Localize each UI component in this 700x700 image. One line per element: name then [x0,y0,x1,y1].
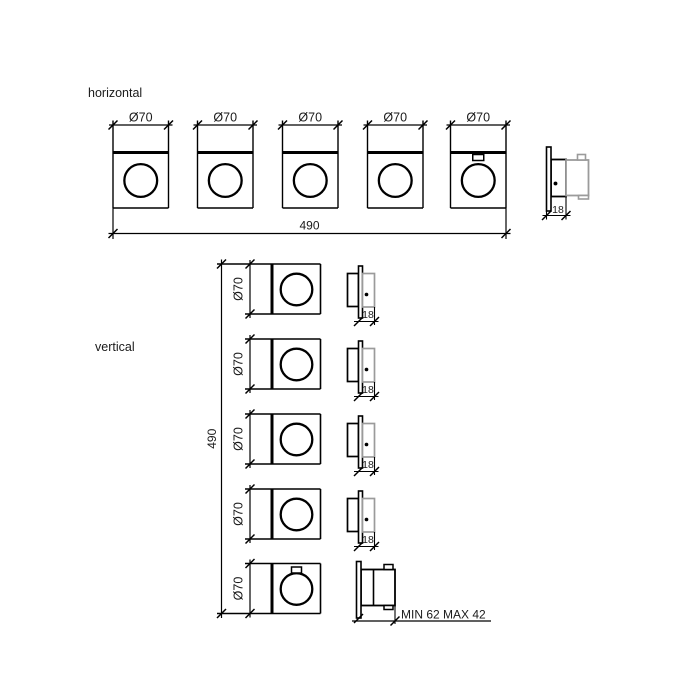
dim-label-diameter: Ø70 [232,277,246,301]
knob-circle [281,499,313,531]
section-label-vertical: vertical [95,340,135,354]
side-view-handle-foot [579,196,589,200]
dim-label-depth: 18 [362,459,374,471]
dim-label-diameter: Ø70 [232,577,246,601]
side-view-handle-tab [578,155,586,161]
side-view-wall-plate [547,147,552,211]
knob-circle [294,164,327,197]
dim-label-diameter: Ø70 [232,352,246,376]
side-view-handle [566,160,589,196]
mounting-dot [365,293,369,297]
mounting-dot [365,368,369,372]
handle-tab [473,155,484,161]
dim-label-depth: 18 [362,309,374,321]
side-view-body [348,274,359,307]
technical-drawing-page: horizontalØ70Ø70Ø70Ø70Ø7049018verticalØ7… [0,0,700,700]
knob-circle [124,164,157,197]
handle-tab [292,567,302,573]
dim-label-diameter: Ø70 [232,502,246,526]
dim-label-depth: 18 [552,204,564,216]
dim-label-overall-width: 490 [299,219,319,233]
side-view-handle [363,424,375,458]
side-view-body [348,424,359,457]
side-view-body [348,499,359,532]
dim-label-diameter: Ø70 [232,427,246,451]
dim-label-diameter: Ø70 [383,111,407,125]
side-view-body [361,570,395,606]
side-view-handle-foot [384,606,393,610]
mounting-dot [365,518,369,522]
dim-label-depth: 18 [362,534,374,546]
dim-label-overall-height: 490 [205,428,219,448]
dim-label-depth: 18 [362,384,374,396]
side-view-wall-plate [357,562,362,619]
side-view-body [551,160,566,197]
side-view-body [348,349,359,382]
knob-circle [281,349,313,381]
knob-circle [281,573,313,605]
dim-label-diameter: Ø70 [129,111,153,125]
dim-label-diameter: Ø70 [213,111,237,125]
dim-label-minmax: MIN 62 MAX 42 [401,608,486,622]
side-view-handle-tab [384,565,393,570]
side-view-handle [363,274,375,308]
knob-circle [462,164,495,197]
technical-drawing-canvas: horizontalØ70Ø70Ø70Ø70Ø7049018verticalØ7… [0,0,700,700]
side-view-handle [363,349,375,383]
dim-label-diameter: Ø70 [466,111,490,125]
knob-circle [209,164,242,197]
mounting-dot [365,443,369,447]
section-label-horizontal: horizontal [88,86,142,100]
mounting-dot [554,182,558,186]
knob-circle [281,274,313,306]
dim-label-diameter: Ø70 [298,111,322,125]
knob-circle [281,424,313,456]
side-view-handle [363,499,375,533]
knob-circle [379,164,412,197]
